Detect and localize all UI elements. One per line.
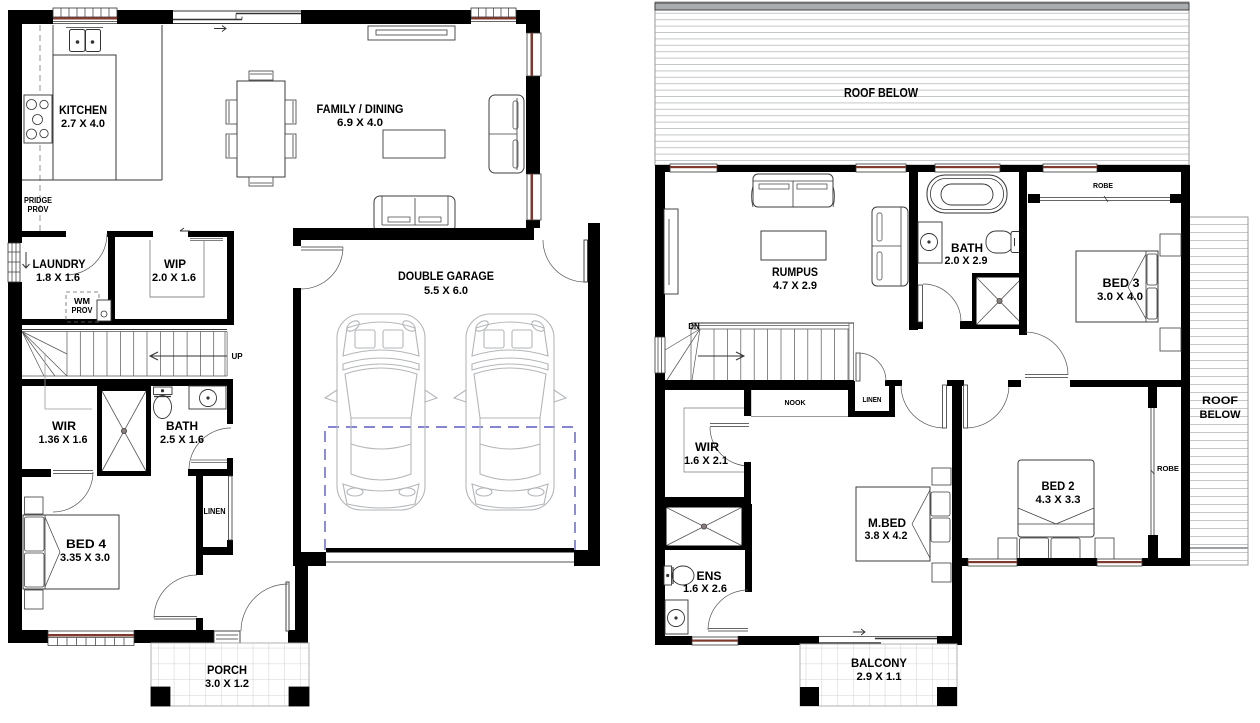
svg-text:BED 4: BED 4 — [66, 537, 106, 551]
svg-text:NOOK: NOOK — [785, 398, 807, 407]
svg-text:6.9 X 4.0: 6.9 X 4.0 — [337, 117, 383, 129]
svg-text:BED 3: BED 3 — [1103, 276, 1140, 290]
svg-text:2.0 X 2.9: 2.0 X 2.9 — [945, 255, 988, 267]
svg-text:PRIDGE: PRIDGE — [24, 196, 53, 205]
svg-text:2.0 X 1.6: 2.0 X 1.6 — [152, 272, 196, 284]
svg-text:ENS: ENS — [697, 569, 722, 583]
svg-text:LINEN: LINEN — [863, 395, 882, 404]
svg-text:2.5 X 1.6: 2.5 X 1.6 — [160, 434, 204, 446]
svg-text:1.8 X 1.6: 1.8 X 1.6 — [36, 272, 80, 284]
svg-text:4.3 X 3.3: 4.3 X 3.3 — [1036, 494, 1081, 506]
svg-text:LINEN: LINEN — [204, 507, 226, 516]
svg-text:WIP: WIP — [164, 257, 186, 271]
svg-text:1.36 X 1.6: 1.36 X 1.6 — [39, 434, 88, 446]
svg-text:KITCHEN: KITCHEN — [59, 103, 107, 117]
svg-text:1.6 X 2.6: 1.6 X 2.6 — [683, 583, 727, 595]
svg-text:WIR: WIR — [52, 419, 76, 433]
svg-text:2.7 X 4.0: 2.7 X 4.0 — [61, 118, 105, 130]
svg-text:ROOF BELOW: ROOF BELOW — [844, 86, 918, 100]
svg-text:BATH: BATH — [951, 241, 983, 255]
svg-text:3.0 X 1.2: 3.0 X 1.2 — [205, 678, 249, 690]
svg-text:PORCH: PORCH — [207, 663, 247, 677]
svg-text:ROOF: ROOF — [1202, 395, 1238, 407]
svg-text:3.8 X 4.2: 3.8 X 4.2 — [865, 530, 908, 542]
svg-text:M.BED: M.BED — [868, 516, 906, 530]
svg-text:1.6 X 2.1: 1.6 X 2.1 — [684, 455, 728, 467]
svg-text:ROBE: ROBE — [1157, 466, 1179, 473]
svg-text:2.9 X 1.1: 2.9 X 1.1 — [857, 671, 902, 683]
svg-text:3.0 X 4.0: 3.0 X 4.0 — [1097, 291, 1143, 303]
svg-text:PROV: PROV — [72, 306, 94, 315]
svg-text:RUMPUS: RUMPUS — [772, 265, 818, 279]
svg-text:4.7 X 2.9: 4.7 X 2.9 — [773, 280, 817, 292]
svg-text:LAUNDRY: LAUNDRY — [33, 257, 86, 271]
svg-text:FAMILY / DINING: FAMILY / DINING — [317, 102, 404, 116]
svg-text:BELOW: BELOW — [1200, 409, 1242, 421]
svg-text:DOUBLE GARAGE: DOUBLE GARAGE — [398, 269, 494, 283]
svg-text:WM: WM — [74, 297, 90, 306]
svg-text:WIR: WIR — [695, 440, 719, 454]
svg-text:BED 2: BED 2 — [1042, 479, 1075, 493]
svg-text:UP: UP — [231, 352, 243, 361]
svg-text:PROV: PROV — [28, 205, 50, 214]
svg-text:DN: DN — [688, 322, 700, 331]
svg-text:3.35 X 3.0: 3.35 X 3.0 — [60, 552, 110, 564]
svg-text:BATH: BATH — [166, 419, 198, 433]
svg-text:5.5 X 6.0: 5.5 X 6.0 — [424, 285, 468, 297]
svg-text:ROBE: ROBE — [1093, 181, 1113, 190]
svg-text:BALCONY: BALCONY — [851, 656, 907, 670]
